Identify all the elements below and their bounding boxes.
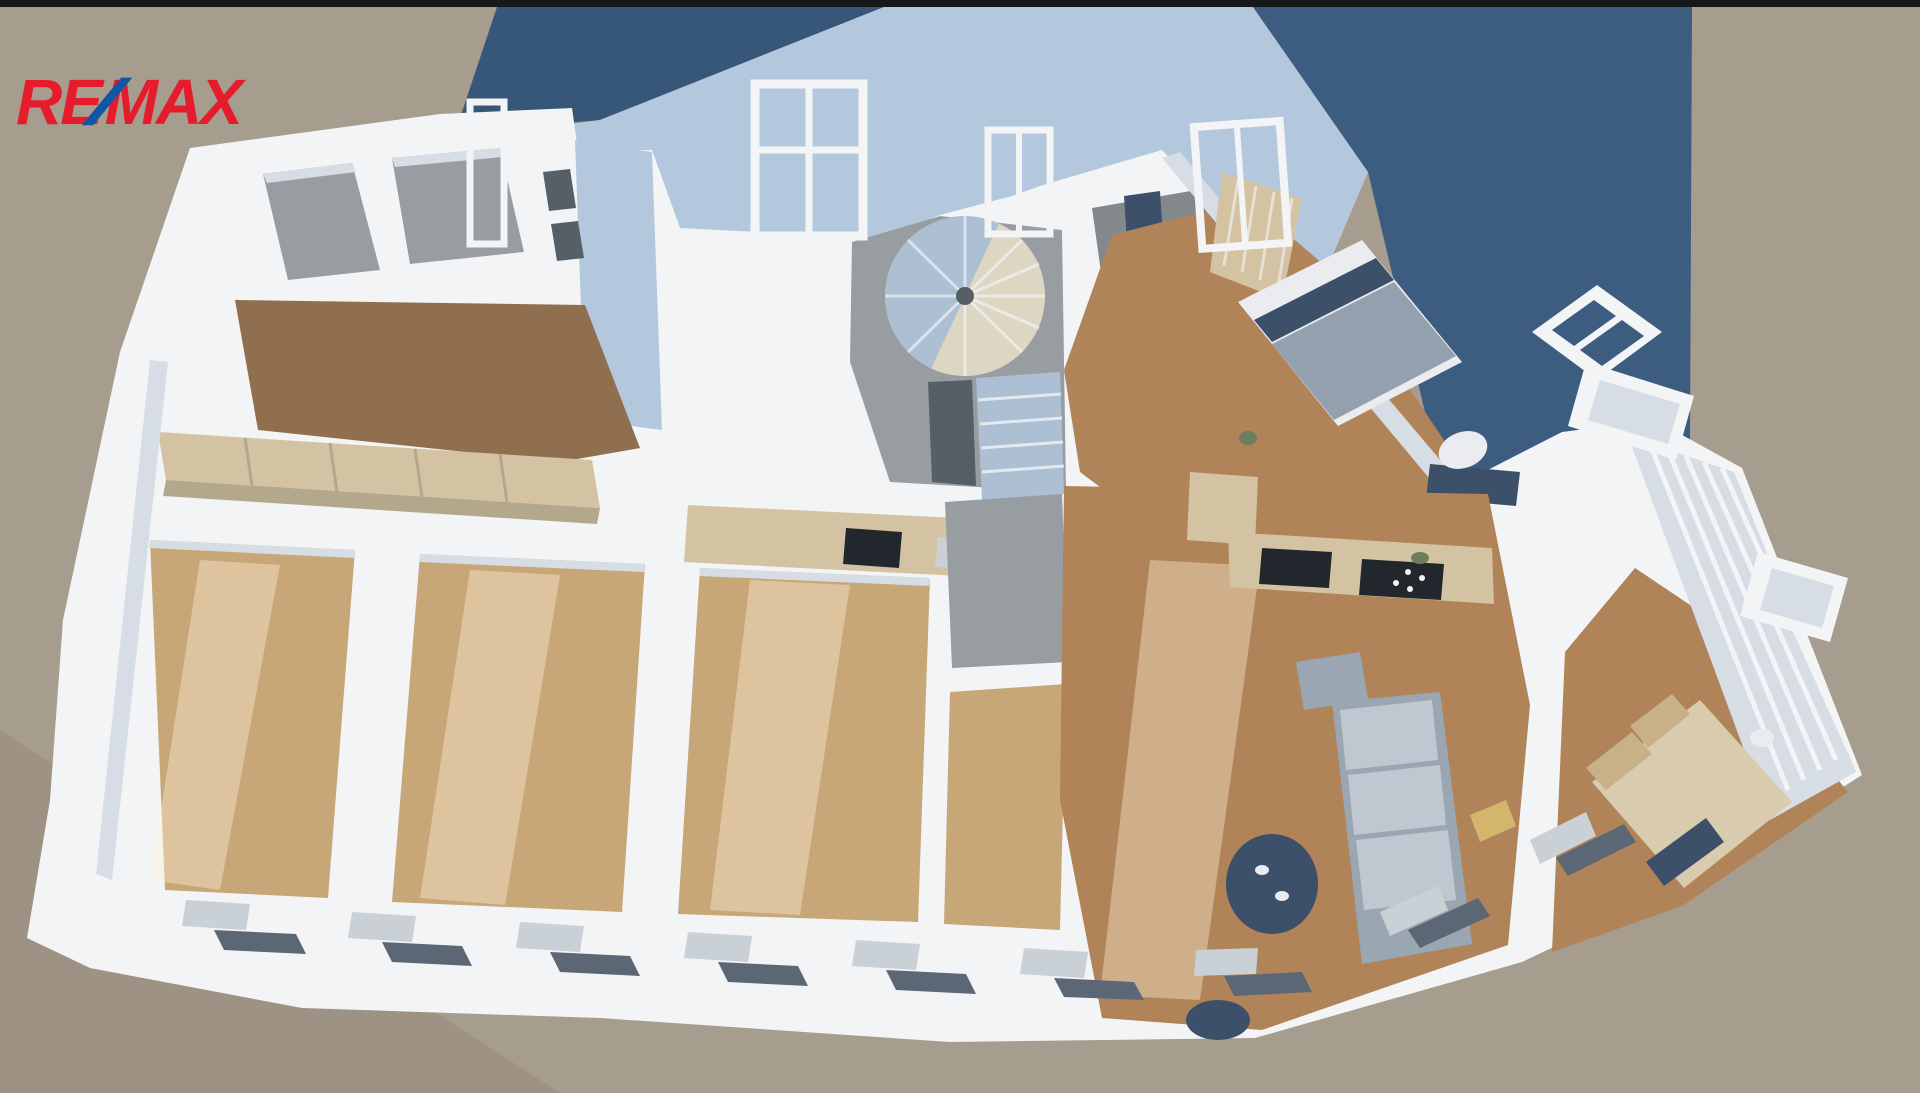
render-stage: RE/MAX [0, 0, 1920, 1093]
sofa-cushion-1 [1340, 700, 1438, 770]
kitchen1-cooktop [843, 528, 902, 568]
floorplan-3d-render [0, 0, 1920, 1093]
cooktop-burner-2 [1419, 575, 1425, 581]
floor-pouf [1186, 1000, 1250, 1040]
coffee-table-item-2 [1275, 891, 1289, 901]
spiral-staircase-post [956, 287, 974, 305]
plant-2 [1411, 552, 1429, 564]
top-bar [0, 0, 1920, 7]
coffee-table [1226, 834, 1318, 934]
coffee-table-item-1 [1255, 865, 1269, 875]
facade-window-sill-7 [1194, 948, 1258, 976]
remax-logo-max: MAX [105, 66, 241, 138]
cooktop-burner-3 [1393, 580, 1399, 586]
kitchen2-cooktop [1359, 559, 1444, 600]
kitchen2-sink [1259, 548, 1332, 588]
cooktop-burner-4 [1407, 586, 1413, 592]
facade-window-sill-3 [516, 922, 584, 952]
facade-window-sill-2 [348, 912, 416, 942]
facade-window-opening-7 [1224, 972, 1312, 996]
corridor-floor [945, 494, 1068, 668]
remax-logo: RE/MAX [16, 70, 241, 134]
facade-window-sill-6 [1020, 948, 1088, 978]
sofa-cushion-2 [1348, 765, 1446, 835]
cooktop-burner-1 [1405, 569, 1411, 575]
facade-window-sill-5 [852, 940, 920, 970]
facade-window-sill-4 [684, 932, 752, 962]
stairwell-void [928, 380, 976, 486]
straight-stair-flight [976, 372, 1064, 500]
facade-window-sill-1 [182, 900, 250, 930]
bed2-side-table [1750, 729, 1774, 747]
room-4-floor [944, 684, 1066, 930]
plant-1 [1239, 431, 1257, 445]
